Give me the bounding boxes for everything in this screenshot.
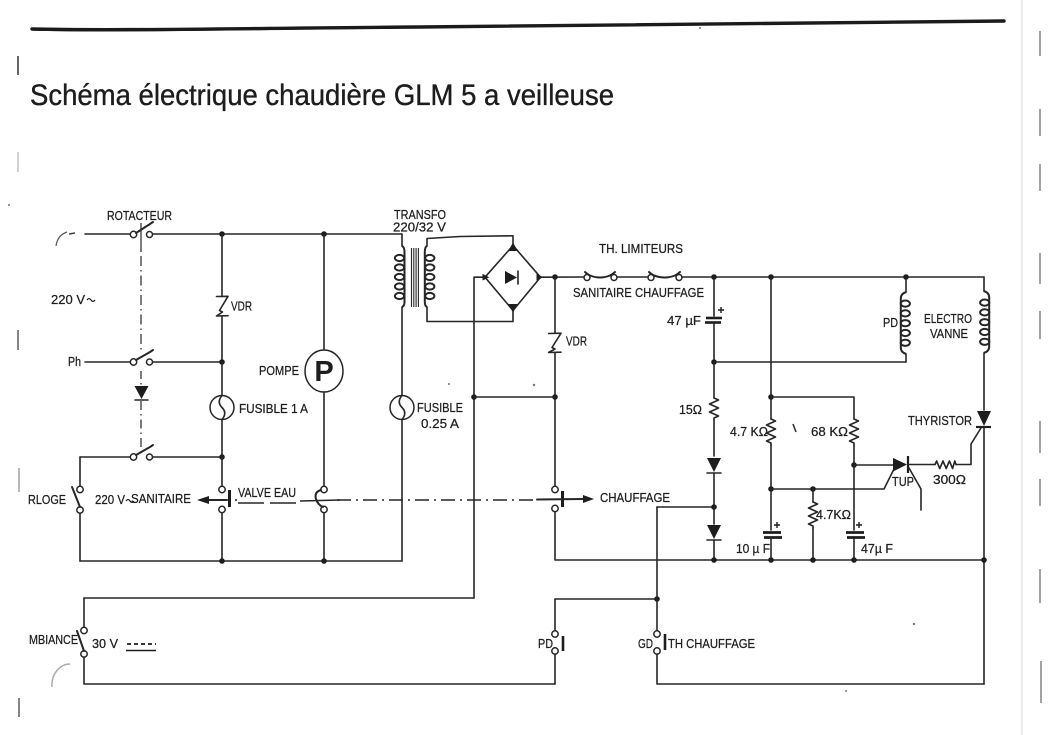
svg-text:TUP: TUP [892, 474, 914, 489]
svg-text:VALVE EAU: VALVE EAU [238, 485, 296, 500]
svg-text:4.7 KΩ: 4.7 KΩ [730, 424, 768, 439]
svg-text:TH. LIMITEURS: TH. LIMITEURS [599, 241, 683, 256]
svg-text:FUSIBLE: FUSIBLE [417, 400, 463, 415]
svg-text:68 KΩ: 68 KΩ [811, 424, 848, 439]
svg-text:220 V: 220 V [95, 492, 125, 507]
svg-text:300Ω: 300Ω [933, 472, 966, 487]
svg-text:220/32 V: 220/32 V [393, 220, 446, 235]
svg-text:Schéma électrique chaudière GL: Schéma électrique chaudière GLM 5 a veil… [30, 79, 614, 112]
svg-text:15Ω: 15Ω [679, 402, 702, 417]
svg-text:CHAUFFAGE: CHAUFFAGE [600, 490, 670, 505]
svg-text:VANNE: VANNE [930, 326, 968, 341]
svg-text:30 V: 30 V [92, 636, 118, 651]
svg-text:GD: GD [638, 636, 653, 651]
svg-text:PD: PD [538, 636, 553, 651]
svg-text:SANITAIRE: SANITAIRE [131, 491, 191, 506]
svg-text:0.25 A: 0.25 A [421, 416, 459, 431]
svg-text:47µ F: 47µ F [861, 541, 893, 556]
svg-text:TH CHAUFFAGE: TH CHAUFFAGE [668, 636, 755, 651]
svg-text:P: P [314, 356, 333, 388]
svg-text:10 µ F: 10 µ F [736, 541, 770, 556]
svg-text:SANITAIRE CHAUFFAGE: SANITAIRE CHAUFFAGE [573, 285, 704, 300]
svg-text:ELECTRO: ELECTRO [924, 311, 972, 326]
svg-text:THYRISTOR: THYRISTOR [908, 413, 972, 428]
svg-text:MBIANCE: MBIANCE [29, 632, 78, 647]
svg-text:POMPE: POMPE [259, 363, 299, 378]
svg-text:VDR: VDR [566, 334, 587, 349]
svg-text:VDR: VDR [231, 299, 252, 314]
svg-text:4.7KΩ: 4.7KΩ [816, 507, 851, 522]
svg-text:Ph: Ph [68, 354, 81, 369]
svg-text:ROTACTEUR: ROTACTEUR [107, 208, 172, 223]
svg-text:47 µF: 47 µF [667, 313, 701, 328]
svg-text:220 V: 220 V [51, 292, 85, 307]
svg-text:PD: PD [883, 315, 898, 330]
svg-text:FUSIBLE 1 A: FUSIBLE 1 A [239, 401, 308, 416]
svg-text:RLOGE: RLOGE [28, 492, 66, 507]
